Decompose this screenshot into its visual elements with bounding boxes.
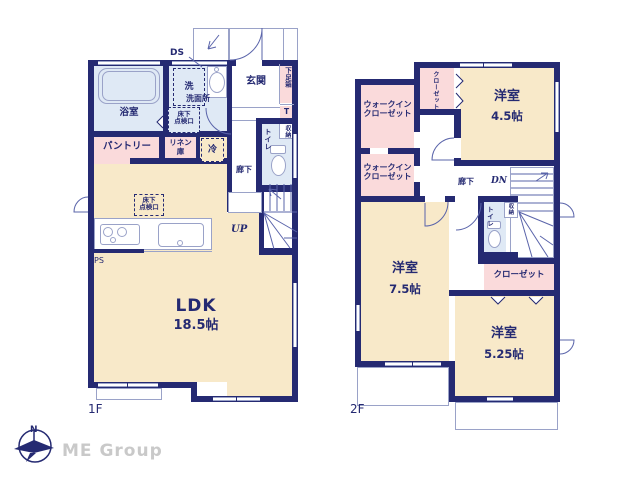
wall <box>196 137 200 158</box>
entrance-door-opening <box>236 60 262 66</box>
wall <box>279 118 294 123</box>
wall <box>478 258 560 264</box>
door-opening <box>454 138 461 158</box>
pantry-label: パントリー <box>95 142 159 153</box>
floor-hatch-label-washroom: 床下 点検口 <box>168 111 200 126</box>
bath-label: 浴室 <box>105 108 153 119</box>
window <box>293 134 297 178</box>
stair-landing-1f <box>228 192 262 213</box>
entrance-label: 玄関 <box>236 76 276 88</box>
wall <box>449 290 560 296</box>
ldk-label: LDK <box>166 297 226 317</box>
window <box>385 362 441 366</box>
wall <box>256 118 262 193</box>
fridge-label: 冷 <box>201 145 224 155</box>
room-ldk-c <box>260 255 292 396</box>
porch-box <box>229 28 298 61</box>
window <box>460 63 512 67</box>
linen-line2: 庫 <box>177 147 185 156</box>
stairs-dn-label: DN <box>491 176 507 186</box>
floor-plan-canvas: DS 浴室 洗 洗面所 床下 点検口 玄関 下足箱 T 収納 トイレ 廊下 パン… <box>0 0 640 480</box>
room525-size-label: 5.25帖 <box>472 348 536 361</box>
door-opening <box>414 132 420 148</box>
compass-north-label: N <box>30 425 38 435</box>
storage-label-1f: 収納 <box>283 125 290 138</box>
pipe-space-label: PS <box>94 256 104 265</box>
room45-size-label: 4.5帖 <box>477 110 537 123</box>
window <box>487 397 513 401</box>
balcony-525 <box>455 402 558 430</box>
wic-line2: クローゼット <box>364 172 412 181</box>
porch-divider <box>283 28 284 61</box>
floor-hatch-label-ldk: 床下 点検口 <box>134 197 164 212</box>
wall <box>159 137 165 158</box>
room75-size-label: 7.5帖 <box>375 283 435 296</box>
toilet-bowl-1f <box>271 155 286 176</box>
closet-top-label: クローゼット <box>431 71 438 110</box>
room45-door-arc <box>432 138 454 160</box>
door-opening <box>414 166 420 182</box>
shoe-box-label: 下足箱 <box>283 67 290 88</box>
room-525 <box>455 296 554 396</box>
wall <box>445 196 455 202</box>
step-line <box>232 120 256 121</box>
wic-line2: クローゼット <box>364 109 412 118</box>
hatch-line2: 点検口 <box>139 203 159 211</box>
wall <box>256 185 298 192</box>
toilet-label-2f: トイレ <box>485 206 492 227</box>
balcony-75 <box>357 367 449 406</box>
left-wall-door-arc <box>74 197 88 212</box>
window <box>293 283 297 347</box>
hatch-line2: 点検口 <box>174 117 194 125</box>
window-tick <box>236 396 237 402</box>
wic2-label: ウォークイン クローゼット <box>362 163 413 181</box>
vanity-basin <box>209 72 225 93</box>
wall <box>227 60 232 137</box>
storage-label-2f: 収納 <box>507 203 513 215</box>
wall <box>414 115 420 202</box>
toilet-tank-1f <box>270 145 286 154</box>
toilet-label-1f: トイレ <box>264 128 272 151</box>
window <box>98 61 160 65</box>
thin-divider <box>279 64 280 104</box>
burner <box>110 237 116 243</box>
counter-base-line <box>144 251 212 252</box>
closet-mid-label: クローゼット <box>484 271 554 281</box>
wall <box>478 196 518 202</box>
stairs-up-label: UP <box>231 224 247 236</box>
washroom-label: 洗面所 <box>174 94 222 103</box>
wic-line1: ウォークイン <box>364 163 412 172</box>
window <box>555 82 559 132</box>
room75-label: 洋室 <box>375 262 435 277</box>
wall <box>355 79 420 85</box>
ldk-size-label: 18.5帖 <box>166 319 226 334</box>
window <box>356 305 360 331</box>
wic-line1: ウォークイン <box>364 100 412 109</box>
room-ldk-b <box>227 213 260 396</box>
floor1-label: 1F <box>88 403 103 417</box>
thin-divider <box>280 104 294 105</box>
right-wall-door-arc-b <box>560 340 574 354</box>
vanity-faucet <box>214 67 219 72</box>
brand-logo-text: ME Group <box>62 441 163 461</box>
wic1-label: ウォークイン クローゼット <box>362 100 413 118</box>
window <box>172 61 227 65</box>
door-opening <box>370 148 388 154</box>
room525-label: 洋室 <box>474 327 534 342</box>
counter-base <box>94 249 144 253</box>
window <box>98 383 158 387</box>
wall <box>414 68 420 115</box>
floor2-label: 2F <box>350 403 365 417</box>
wall <box>262 248 298 255</box>
wall <box>355 196 425 202</box>
hallway-label-2f: 廊下 <box>458 177 474 186</box>
linen-label: リネン 庫 <box>166 139 195 156</box>
laundry-label: 洗 <box>173 82 205 92</box>
right-wall-door-arc-a <box>560 203 574 217</box>
window-tick <box>483 62 484 68</box>
wall <box>292 60 298 402</box>
toilet-bowl-2f <box>488 230 501 248</box>
step-line <box>232 107 280 108</box>
approach-box <box>193 28 229 61</box>
room45-label: 洋室 <box>477 90 537 105</box>
shoe-box-t-label: T <box>284 108 289 117</box>
burner <box>103 227 113 237</box>
bathtub-inner <box>102 71 156 101</box>
terrace-1f <box>96 388 162 400</box>
hallway-label-1f: 廊下 <box>236 165 252 174</box>
wall <box>454 160 560 166</box>
sink-faucet <box>177 240 183 246</box>
room-entrance <box>232 64 280 122</box>
burner <box>117 227 127 237</box>
duct-label: DS <box>170 48 184 58</box>
